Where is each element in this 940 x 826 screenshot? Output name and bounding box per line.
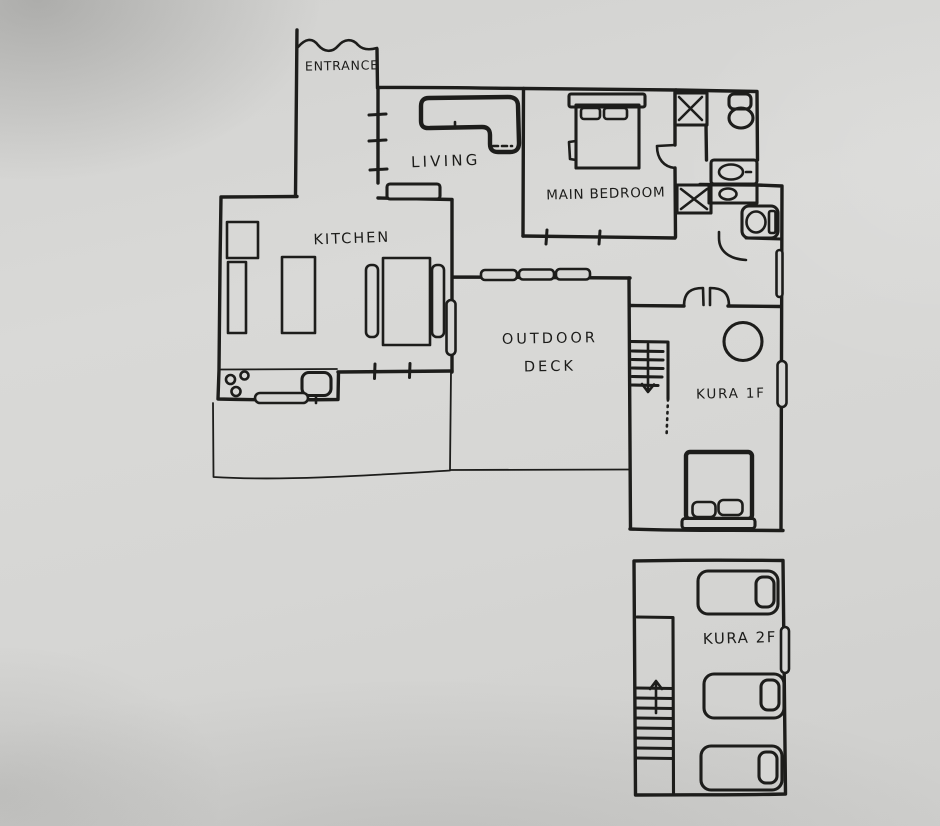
- pillow-icon: [761, 680, 779, 710]
- kitchen-counter-edge: [221, 369, 337, 370]
- room-label-living: LIVING: [411, 151, 481, 171]
- stove-burner-icon: [226, 375, 235, 384]
- room-label-kitchen: KITCHEN: [313, 230, 390, 249]
- dining-table-icon: [383, 258, 430, 345]
- chair-icon: [432, 265, 444, 337]
- main-bedroom-room: MAIN BEDROOM: [523, 89, 676, 245]
- chair-icon: [366, 265, 378, 337]
- kura1f-walls: [629, 278, 783, 531]
- outdoor-deck-room: OUTDOOR DECK: [213, 200, 630, 478]
- pillow-icon: [759, 752, 777, 783]
- room-label-kura-2f: KURA 2F: [703, 628, 777, 648]
- bathroom-top: [675, 90, 758, 160]
- pillow-icon: [719, 500, 743, 515]
- paper-sheet: ENTRANCE LIVING MAIN BEDROOM: [0, 0, 940, 826]
- stairs-dotted-rail: [667, 399, 669, 437]
- sliding-door-panel-icon: [519, 270, 554, 280]
- room-label-outdoor-deck-line1: OUTDOOR: [502, 330, 598, 348]
- wc-room: [719, 206, 781, 260]
- sliding-door-marker-icon: [447, 300, 456, 355]
- washbasin-icon: [709, 185, 757, 203]
- paper-torn-edge: [298, 40, 377, 51]
- floor-plan-drawing: ENTRANCE LIVING MAIN BEDROOM: [0, 0, 940, 826]
- deck-annex-outline: [213, 372, 630, 478]
- toilet-side-bowl: [747, 212, 766, 233]
- room-label-entrance: ENTRANCE: [305, 57, 379, 73]
- room-label-kura-1f: KURA 1F: [696, 385, 766, 402]
- toilet-bowl-icon: [729, 108, 753, 128]
- x-closet-cross: [679, 97, 702, 120]
- sliding-door-panel-icon: [481, 270, 517, 280]
- kitchen-sink-icon: [302, 373, 331, 396]
- round-table-icon: [724, 323, 762, 361]
- washbasin-bowl: [720, 189, 737, 200]
- wc-door-swing-icon: [719, 232, 746, 260]
- window-icon: [781, 627, 789, 673]
- tv-stand-icon: [387, 184, 440, 199]
- stove-burner-icon: [232, 387, 241, 396]
- kitchen-room: KITCHEN: [218, 197, 452, 404]
- kura-2f-room: KURA 2F: [634, 560, 789, 795]
- washbasin-bowl: [719, 165, 743, 180]
- kura-1f-room: KURA 1F: [629, 250, 787, 531]
- counter-icon: [228, 262, 246, 333]
- bathroom-mid-walls: [700, 185, 782, 531]
- bathroom-mid: [677, 160, 782, 530]
- bed-footboard-icon: [682, 519, 755, 529]
- double-door-icon: [684, 288, 729, 306]
- window-icon: [778, 361, 787, 407]
- window-icon: [777, 250, 783, 297]
- toilet-side-tank: [769, 211, 776, 233]
- kitchen-island-icon: [282, 257, 315, 333]
- fridge-icon: [227, 222, 258, 258]
- pillow-icon: [693, 502, 716, 517]
- room-label-outdoor-deck-line2: DECK: [524, 359, 576, 376]
- sofa-icon: [421, 97, 519, 152]
- x-closet-cross: [681, 189, 707, 209]
- entrance-room: ENTRANCE: [296, 30, 388, 196]
- tray-icon: [255, 393, 308, 403]
- pillow-icon: [604, 108, 627, 119]
- pillow-icon: [581, 108, 600, 119]
- bedroom-door-swing-icon: [657, 145, 675, 168]
- stove-burner-icon: [241, 372, 249, 380]
- entrance-walls: [296, 30, 379, 196]
- room-label-main-bedroom: MAIN BEDROOM: [546, 184, 666, 203]
- pillow-icon: [756, 577, 774, 607]
- sliding-door-panel-icon: [556, 269, 590, 280]
